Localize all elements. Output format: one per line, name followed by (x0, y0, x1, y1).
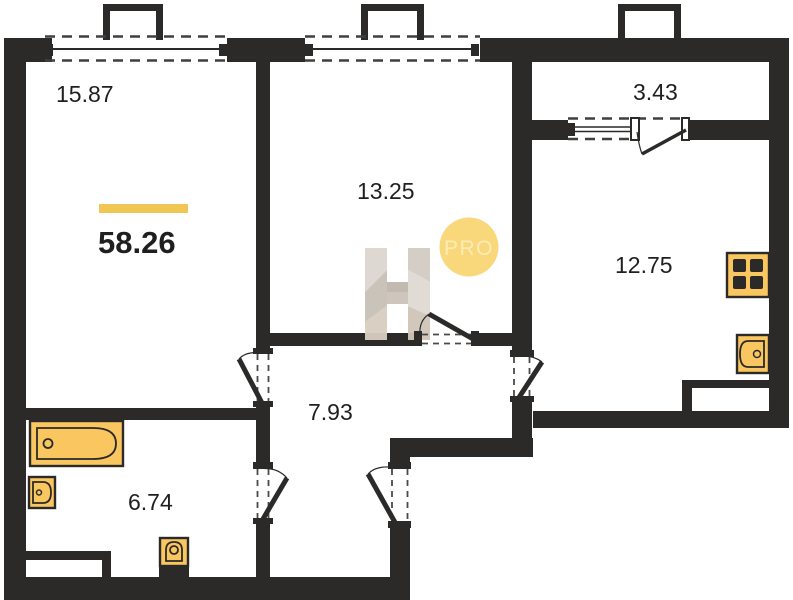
area-label-bedroom: 13.25 (357, 178, 415, 204)
balcony-door-hinge (682, 118, 689, 140)
stove (727, 253, 769, 297)
watermark-pro-badge: PRO (440, 218, 499, 277)
area-label-living-room: 15.87 (56, 81, 114, 107)
living-room-window (45, 37, 227, 61)
bathroom-sink (29, 477, 55, 508)
shaft-outline-middle (365, 8, 421, 41)
floor-plan-canvas: PRO (0, 0, 793, 600)
shaft-outline-right (622, 8, 678, 41)
entrance-door (368, 462, 411, 528)
pro-badge-text: PRO (444, 237, 494, 260)
area-label-bathroom: 6.74 (128, 489, 173, 515)
balcony-door-leaf (642, 130, 686, 154)
bedroom-window (305, 37, 480, 61)
total-area-accent-bar (99, 204, 188, 213)
total-area-label: 58.26 (98, 225, 176, 260)
balcony-window-door (566, 118, 689, 154)
walls (4, 38, 789, 600)
shaft-outline-left (107, 8, 160, 41)
area-label-hallway: 7.93 (308, 399, 353, 425)
bathroom-door (253, 462, 287, 524)
floor-plan: PRO (0, 0, 793, 600)
exterior-shafts (107, 8, 678, 41)
toilet (159, 538, 189, 578)
living-room-door (239, 348, 273, 407)
kitchen-sink (737, 335, 769, 373)
bathtub (30, 421, 123, 466)
area-label-kitchen: 12.75 (615, 252, 673, 278)
area-label-balcony: 3.43 (633, 79, 678, 105)
kitchen-door (510, 350, 542, 402)
